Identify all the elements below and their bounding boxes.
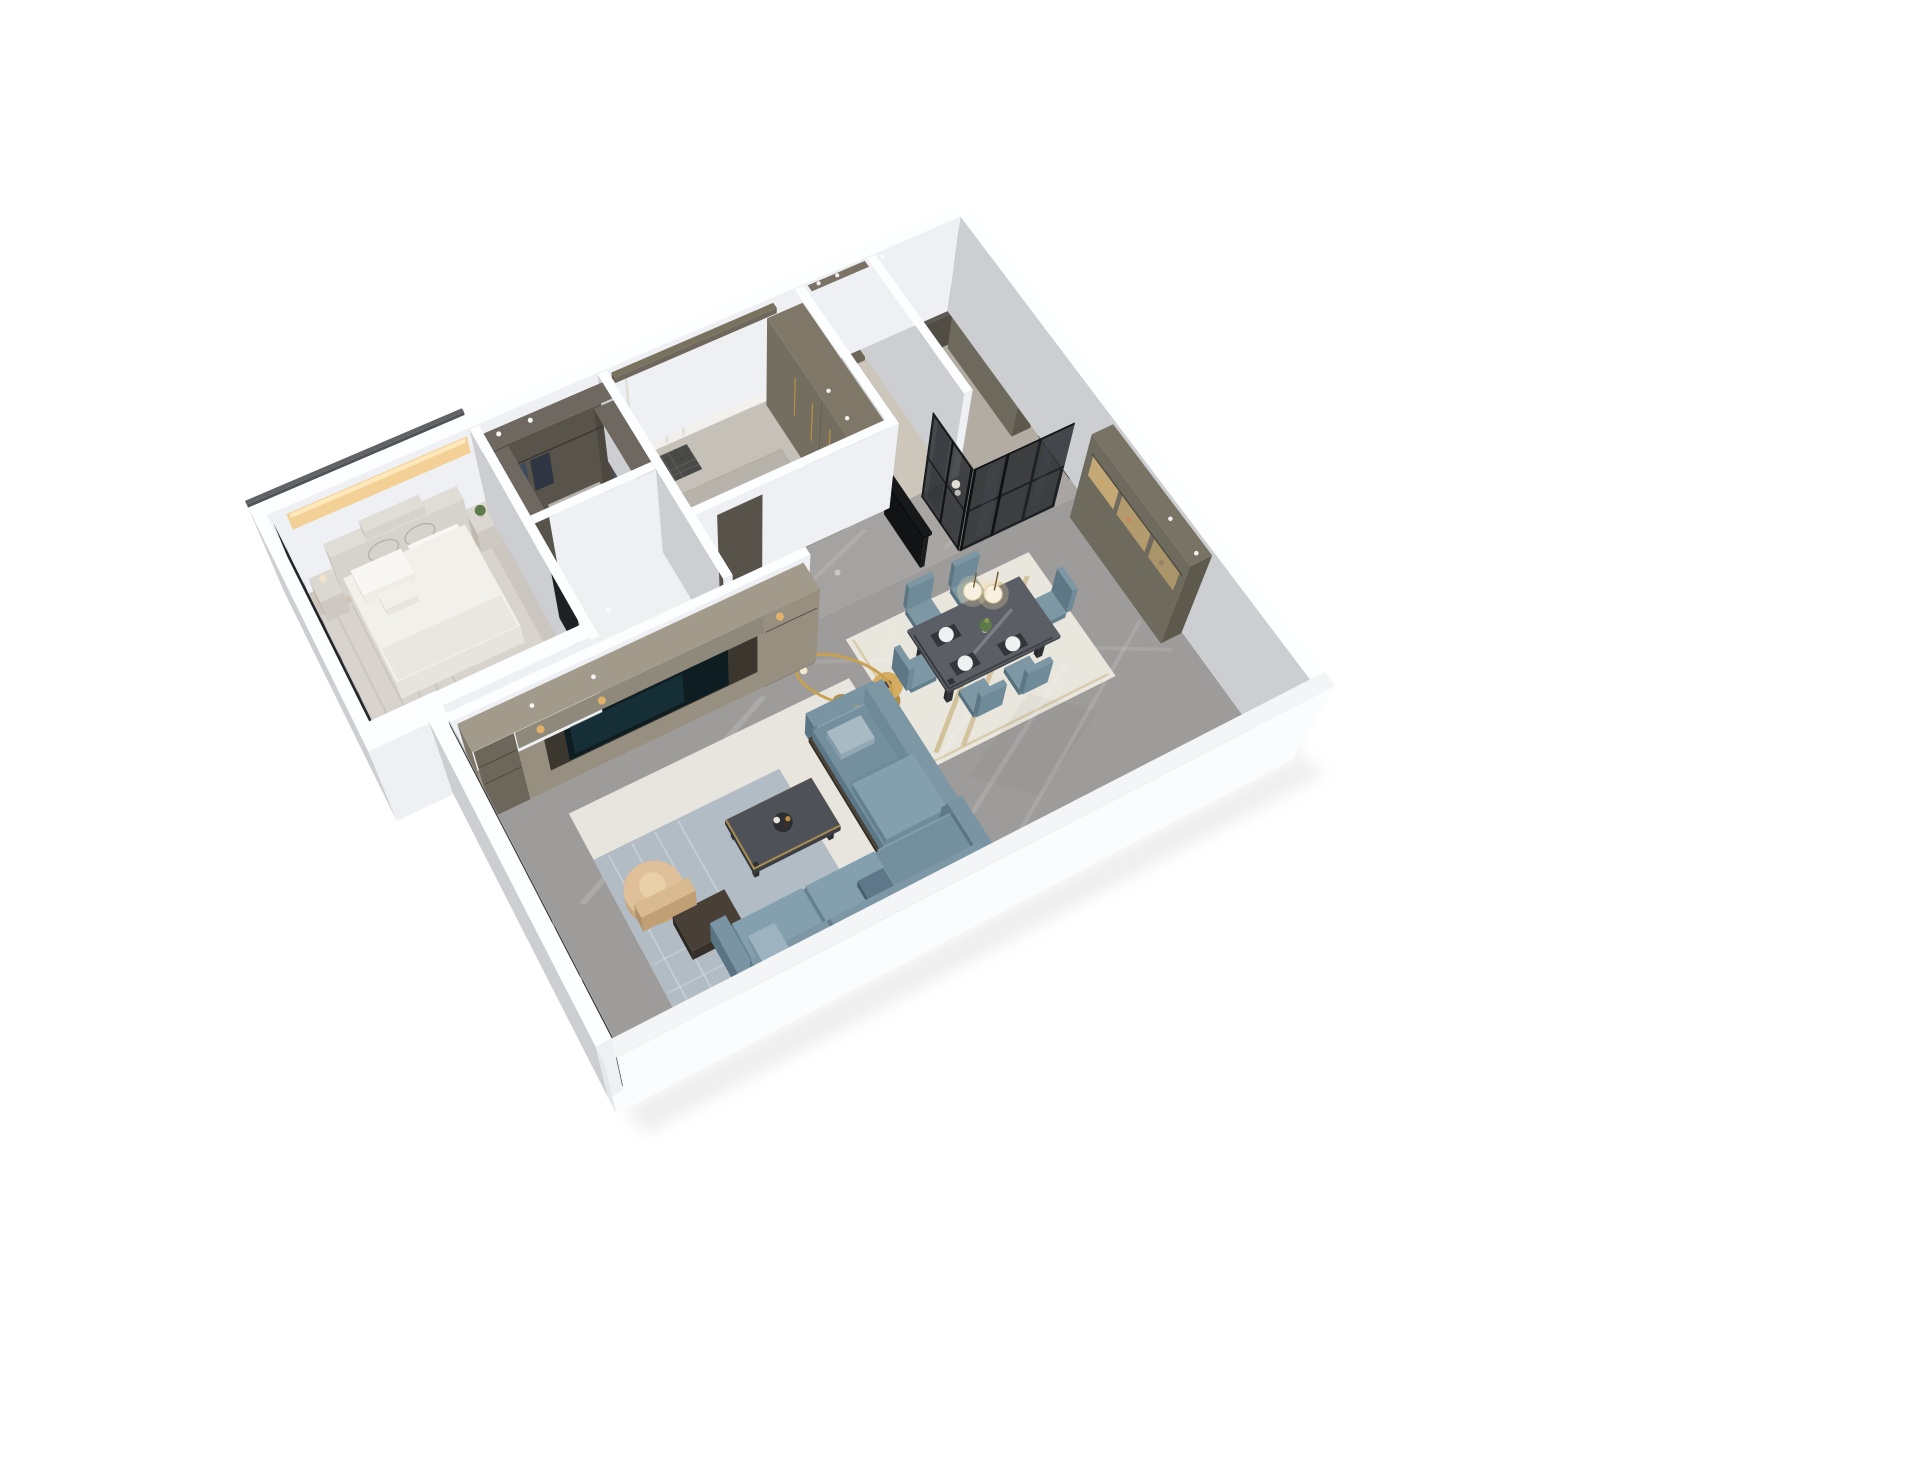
pendant-globe <box>963 582 981 600</box>
wardrobe-top-lights <box>826 389 830 393</box>
tv-cabinet-warm-lights <box>598 697 606 705</box>
cabinet-top-lights <box>1194 551 1199 556</box>
closet-downlights <box>528 418 533 423</box>
dinner-plates <box>939 627 954 642</box>
entry-downlights <box>816 281 820 285</box>
closet-downlights <box>496 431 501 436</box>
glass-pendant-lights <box>952 480 961 489</box>
tray-decor <box>784 822 788 826</box>
wardrobe-top-lights <box>845 416 849 420</box>
bath-floor-glints <box>606 607 612 613</box>
glass-pendant-lights <box>955 490 961 496</box>
dinner-plates <box>1005 636 1020 651</box>
tv-cabinet-warm-lights <box>537 725 545 733</box>
floorplan-geometry: PRODUCTIONSSKYDANCE <box>245 206 1335 1134</box>
dinner-plates <box>958 656 973 671</box>
tv-cabinet-top-lights <box>530 703 535 708</box>
kitchen-downlights <box>880 254 884 258</box>
corridor-floor-glints <box>834 569 840 575</box>
page-background: PRODUCTIONSSKYDANCE <box>0 0 1920 1484</box>
tv-cabinet-top-lights <box>591 674 596 679</box>
table-lamp <box>319 575 326 582</box>
floorplan-3d-render: PRODUCTIONSSKYDANCE <box>0 0 1920 1484</box>
entry-downlights <box>835 273 839 277</box>
plant <box>475 505 486 516</box>
tray-decor <box>785 816 790 821</box>
tv-cabinet-warm-lights <box>776 613 784 621</box>
tray-decor <box>773 817 780 824</box>
centerpiece-flowers <box>984 618 989 623</box>
cabinet-top-lights <box>1168 517 1173 522</box>
